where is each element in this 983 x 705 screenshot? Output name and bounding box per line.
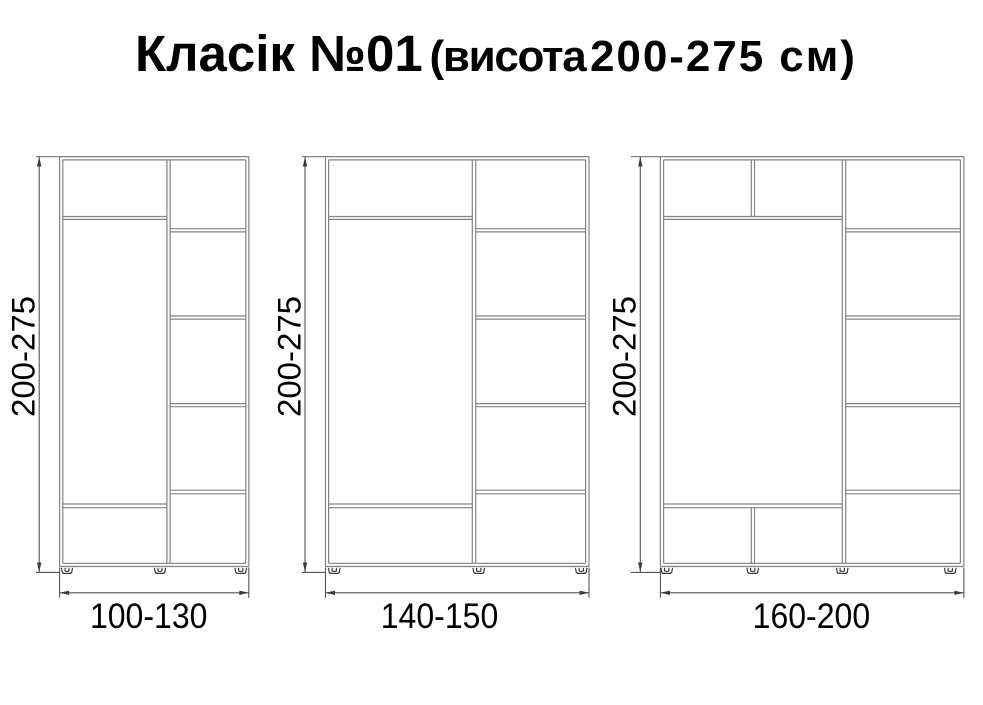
svg-text:140-150: 140-150 — [381, 597, 499, 636]
svg-text:100-130: 100-130 — [90, 597, 208, 636]
svg-text:160-200: 160-200 — [753, 597, 871, 636]
svg-text:200-275: 200-275 — [271, 296, 307, 417]
svg-text:Класік №01: Класік №01 — [135, 25, 423, 82]
svg-text:200-275 см): 200-275 см) — [590, 32, 857, 81]
svg-text:(висота: (висота — [430, 32, 588, 81]
svg-text:200-275: 200-275 — [6, 296, 42, 417]
svg-text:200-275: 200-275 — [607, 296, 643, 417]
